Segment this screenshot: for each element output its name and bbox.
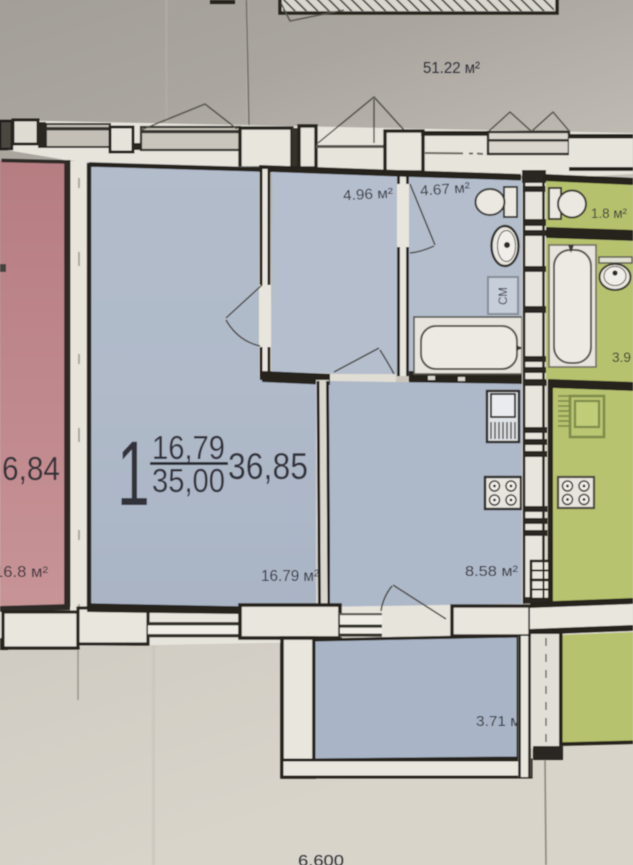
svg-text:16.79 м²: 16.79 м² bbox=[261, 568, 320, 585]
svg-text:6,600: 6,600 bbox=[298, 853, 344, 865]
svg-text:51.22 м²: 51.22 м² bbox=[423, 60, 481, 77]
svg-text:1.8 м²: 1.8 м² bbox=[591, 206, 627, 221]
svg-text:1: 1 bbox=[117, 423, 150, 525]
svg-text:8.58 м²: 8.58 м² bbox=[465, 563, 518, 580]
svg-text:6,84: 6,84 bbox=[2, 450, 60, 487]
svg-text:36,85: 36,85 bbox=[228, 446, 308, 487]
svg-text:16,79: 16,79 bbox=[152, 429, 225, 466]
svg-text:35,00: 35,00 bbox=[152, 462, 225, 499]
svg-text:4.96 м²: 4.96 м² bbox=[343, 186, 394, 205]
svg-text:16.8 м²: 16.8 м² bbox=[0, 564, 48, 581]
svg-text:СМ: СМ bbox=[498, 287, 510, 305]
svg-text:3.9: 3.9 bbox=[612, 350, 631, 365]
